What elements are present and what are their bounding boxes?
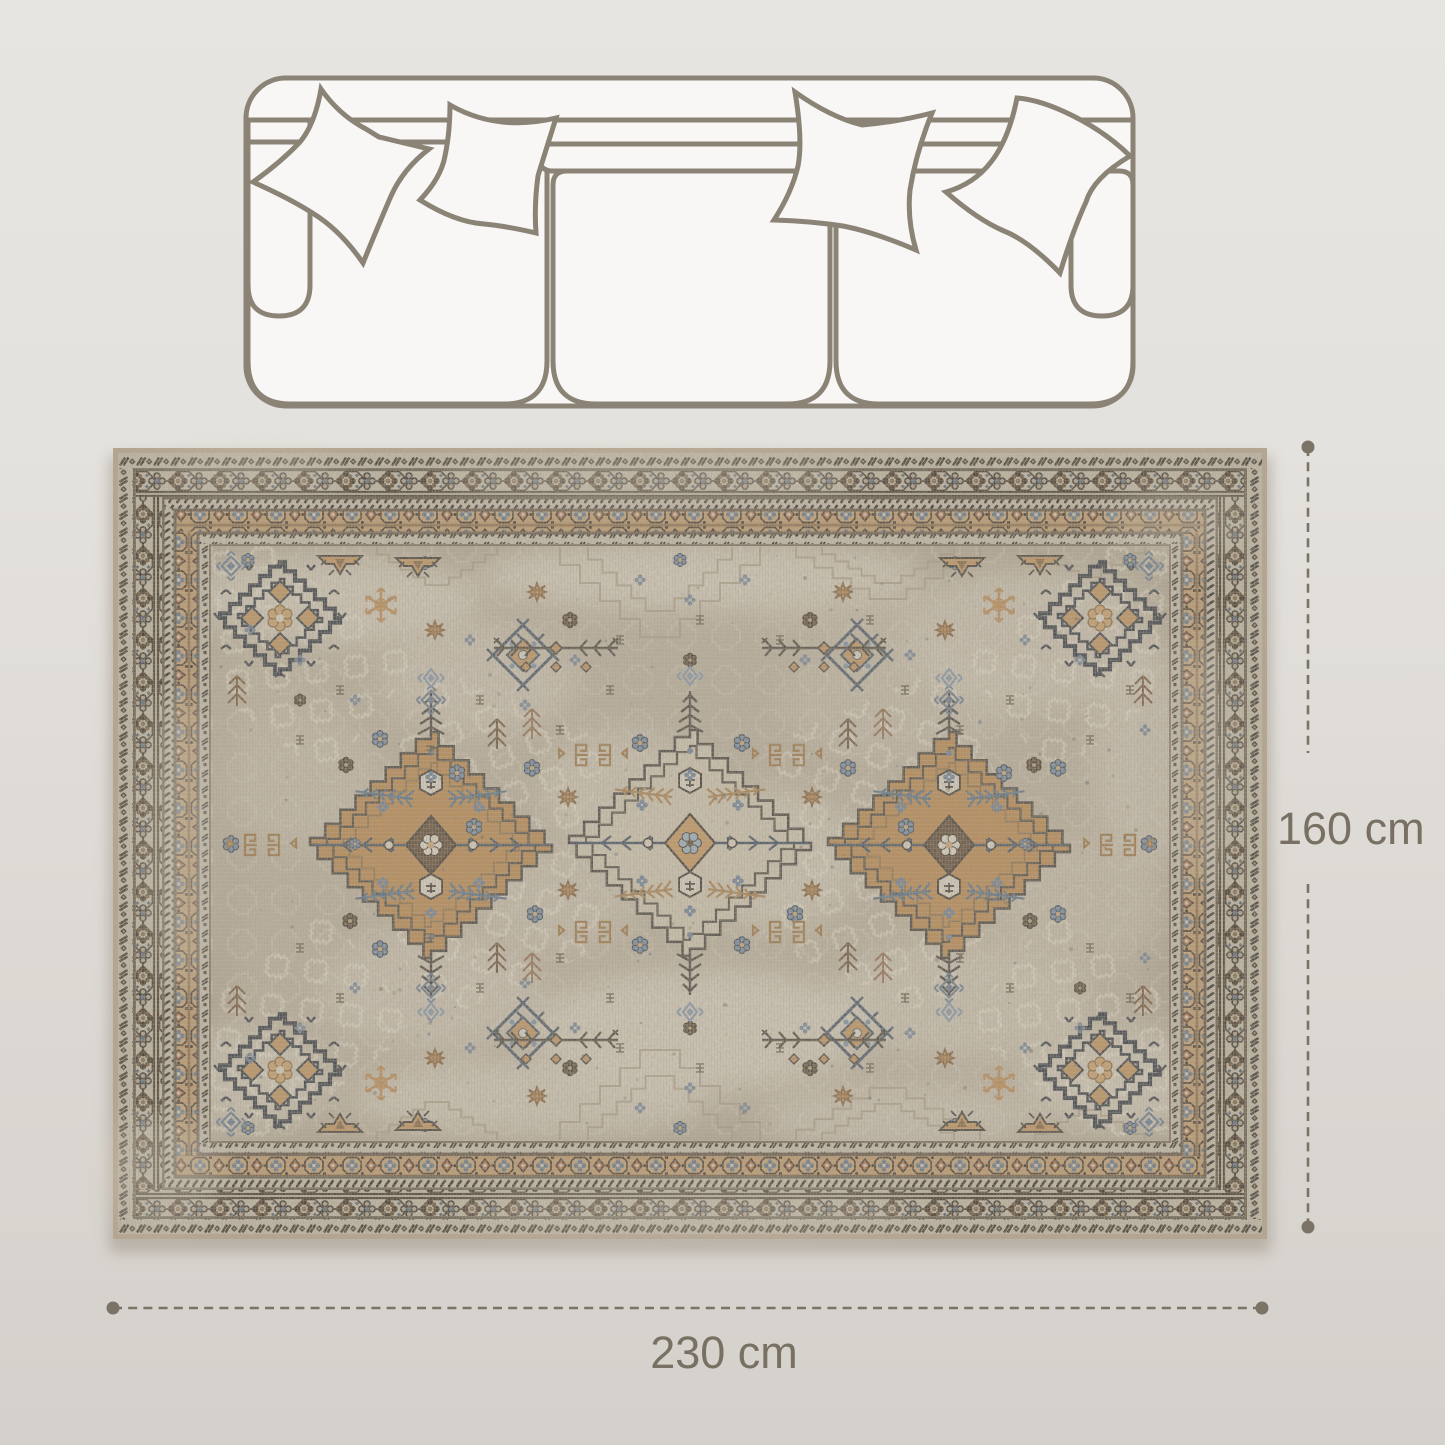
svg-text:160 cm: 160 cm bbox=[1277, 803, 1425, 854]
svg-text:230 cm: 230 cm bbox=[650, 1327, 798, 1378]
